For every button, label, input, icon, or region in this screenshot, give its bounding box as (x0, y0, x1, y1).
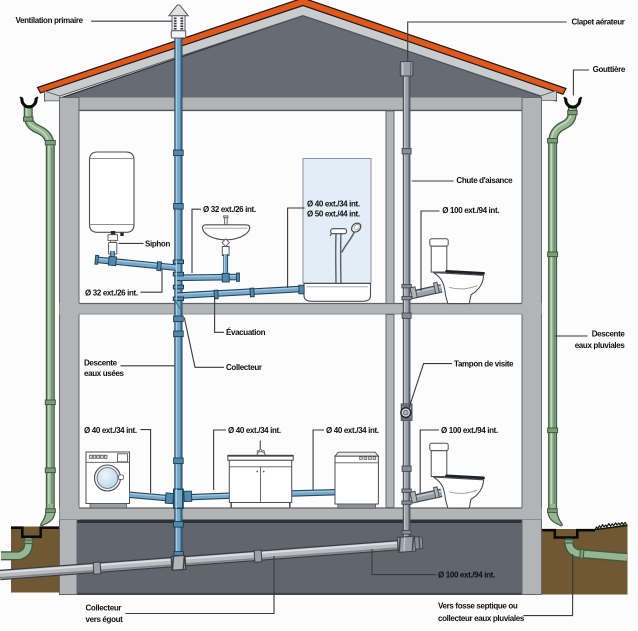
svg-text:Ø 40 ext./34 int.: Ø 40 ext./34 int. (307, 199, 360, 208)
svg-text:Vers fosse septique ou: Vers fosse septique ou (438, 601, 518, 610)
svg-text:Ø 40 ext./34 int.: Ø 40 ext./34 int. (326, 426, 379, 435)
svg-text:Tampon de visite: Tampon de visite (454, 359, 514, 368)
svg-text:Gouttière: Gouttière (593, 65, 626, 74)
svg-text:Ventilation primaire: Ventilation primaire (16, 16, 84, 25)
svg-text:Ø 100 ext./94 int.: Ø 100 ext./94 int. (442, 206, 499, 215)
svg-text:Ø 40 ext./34 int.: Ø 40 ext./34 int. (228, 426, 281, 435)
svg-text:Ø 32 ext./26 int.: Ø 32 ext./26 int. (203, 205, 256, 214)
svg-text:Clapet aérateur: Clapet aérateur (572, 17, 625, 26)
svg-text:Siphon: Siphon (145, 239, 170, 248)
svg-text:Collecteur: Collecteur (226, 363, 262, 372)
svg-text:Chute d'aisance: Chute d'aisance (456, 176, 513, 185)
svg-text:Ø 32 ext./26 int.: Ø 32 ext./26 int. (85, 288, 138, 297)
svg-text:collecteur eaux pluviales: collecteur eaux pluviales (438, 614, 525, 623)
svg-text:Ø 50 ext./44 int.: Ø 50 ext./44 int. (307, 209, 360, 218)
svg-text:Descente: Descente (592, 329, 626, 338)
svg-text:eaux usées: eaux usées (84, 369, 125, 378)
svg-text:Collecteur: Collecteur (86, 603, 122, 612)
svg-text:vers égout: vers égout (86, 615, 124, 624)
svg-text:Ø 40 ext./34 int.: Ø 40 ext./34 int. (84, 426, 137, 435)
svg-text:eaux pluviales: eaux pluviales (575, 341, 626, 350)
svg-text:Ø 100 ext./94 int.: Ø 100 ext./94 int. (438, 570, 495, 579)
svg-text:Évacuation: Évacuation (226, 328, 266, 337)
svg-text:Descente: Descente (84, 358, 118, 367)
svg-text:Ø 100 ext./94 int.: Ø 100 ext./94 int. (441, 426, 498, 435)
